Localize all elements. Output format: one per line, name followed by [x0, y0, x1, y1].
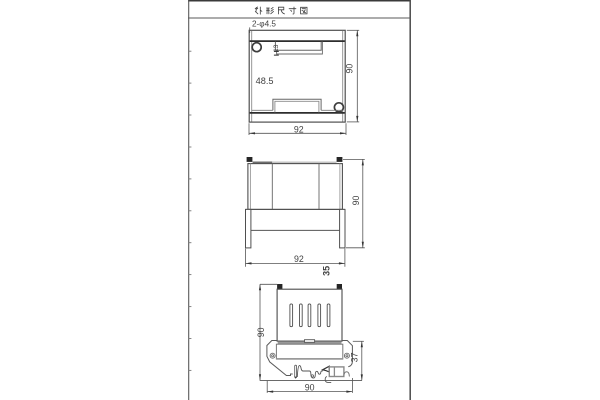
svg-text:92: 92 [294, 254, 304, 264]
svg-text:90: 90 [256, 327, 266, 337]
svg-text:90: 90 [351, 196, 361, 206]
svg-text:2-φ4.5: 2-φ4.5 [252, 20, 276, 29]
svg-text:90: 90 [344, 64, 354, 74]
svg-text:90: 90 [305, 383, 315, 393]
svg-text:37: 37 [350, 352, 360, 362]
svg-text:48.5: 48.5 [256, 76, 274, 86]
svg-text:92: 92 [294, 124, 304, 134]
svg-text:35: 35 [322, 266, 332, 276]
svg-text:13: 13 [273, 44, 280, 52]
